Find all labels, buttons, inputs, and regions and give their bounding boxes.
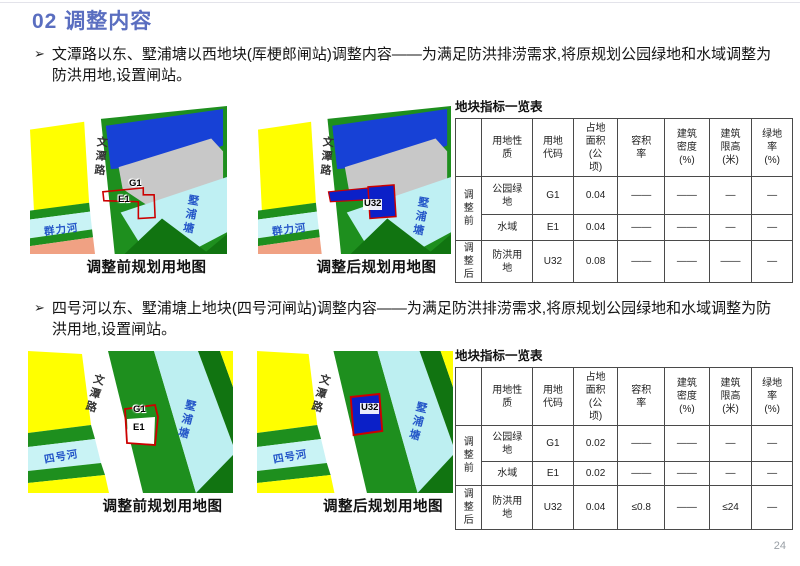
cell-area: 0.02 <box>573 426 618 462</box>
col-header: 用地性 质 <box>482 368 533 426</box>
table-row: 水域 E1 0.02 —— —— — — <box>456 462 793 486</box>
bullet-text-2: 四号河以东、墅浦塘上地块(四号河闸站)调整内容——为满足防洪排涝需求,将原规划公… <box>52 298 782 340</box>
col-header: 建筑 密度 (%) <box>665 119 710 177</box>
row-group-after: 调 整 后 <box>456 241 482 283</box>
row-group-after: 调 整 后 <box>456 486 482 530</box>
cell-height: ≤24 <box>709 486 752 530</box>
parcel-yellow <box>257 351 317 433</box>
corner-cell <box>456 119 482 177</box>
cell-green: — <box>752 486 793 530</box>
cell-density: —— <box>665 241 710 283</box>
cell-far: —— <box>618 241 665 283</box>
col-header: 占地 面积 (公 顷) <box>573 368 618 426</box>
bullet-arrow-icon: ➢ <box>34 44 45 86</box>
table-title-1: 地块指标一览表 <box>455 96 543 115</box>
cell-green: — <box>752 177 793 215</box>
parcel-u32-block <box>351 394 383 435</box>
parcel-code-g1: G1 <box>129 178 142 189</box>
cell-area: 0.04 <box>573 177 618 215</box>
cell-density: —— <box>665 486 710 530</box>
bullet-item-1: ➢ 文潭路以东、墅浦塘以西地块(厍梗郎闸站)调整内容——为满足防洪排涝需求,将原… <box>34 44 782 86</box>
top-divider <box>0 2 800 3</box>
cell-far: —— <box>618 426 665 462</box>
map-caption-before-2: 调整前规划用地图 <box>60 495 265 516</box>
table-row: 调 整 后 防洪用 地 U32 0.04 ≤0.8 —— ≤24 — <box>456 486 793 530</box>
map-before-section2: 文潭路 四号河 墅浦塘 G1 E1 <box>28 351 233 493</box>
cell-green: — <box>752 462 793 486</box>
col-header: 用地性 质 <box>482 119 533 177</box>
cell-far: —— <box>618 462 665 486</box>
cell-green: — <box>752 215 793 241</box>
cell-nature: 防洪用 地 <box>482 241 533 283</box>
corner-cell <box>456 368 482 426</box>
cell-far: ≤0.8 <box>618 486 665 530</box>
parcel-yellow <box>258 122 316 211</box>
cell-area: 0.02 <box>573 462 618 486</box>
cell-green: — <box>752 426 793 462</box>
col-header: 建筑 限高 (米) <box>709 119 752 177</box>
map-before-section1: 文潭路 群力河 墅浦塘 G1 E1 <box>30 106 227 254</box>
table-header-row: 用地性 质 用地 代码 占地 面积 (公 顷) 容积 率 建筑 密度 (%) 建… <box>456 119 793 177</box>
cell-nature: 公园绿 地 <box>482 426 533 462</box>
map-caption-after-1: 调整后规划用地图 <box>280 256 473 277</box>
cell-area: 0.04 <box>573 486 618 530</box>
parcel-yellow <box>30 122 89 211</box>
cell-code: E1 <box>533 215 574 241</box>
cell-nature: 公园绿 地 <box>482 177 533 215</box>
parcel-code-u32: U32 <box>360 403 379 414</box>
cell-height: —— <box>709 241 752 283</box>
cell-code: G1 <box>533 426 574 462</box>
col-header: 建筑 限高 (米) <box>709 368 752 426</box>
table-row: 调 整 前 公园绿 地 G1 0.04 —— —— — — <box>456 177 793 215</box>
cell-nature: 防洪用 地 <box>482 486 533 530</box>
cell-density: —— <box>665 462 710 486</box>
bullet-arrow-icon: ➢ <box>34 298 45 340</box>
row-group-before: 调 整 前 <box>456 426 482 486</box>
bullet-text-1: 文潭路以东、墅浦塘以西地块(厍梗郎闸站)调整内容——为满足防洪排涝需求,将原规划… <box>52 44 782 86</box>
cell-density: —— <box>665 426 710 462</box>
cell-code: G1 <box>533 177 574 215</box>
cell-far: —— <box>618 177 665 215</box>
table-row: 调 整 前 公园绿 地 G1 0.02 —— —— — — <box>456 426 793 462</box>
page-number: 24 <box>774 540 786 552</box>
cell-code: U32 <box>533 241 574 283</box>
page-title: 02 调整内容 <box>32 5 152 35</box>
cell-density: —— <box>665 177 710 215</box>
col-header: 绿地 率 (%) <box>752 368 793 426</box>
col-header: 容积 率 <box>618 368 665 426</box>
indicator-table-2: 用地性 质 用地 代码 占地 面积 (公 顷) 容积 率 建筑 密度 (%) 建… <box>455 367 793 530</box>
map-after-section2: 文潭路 四号河 墅浦塘 U32 <box>257 351 453 493</box>
cell-area: 0.04 <box>573 215 618 241</box>
cell-green: — <box>752 241 793 283</box>
map-caption-before-1: 调整前规划用地图 <box>48 256 245 277</box>
row-group-before: 调 整 前 <box>456 177 482 241</box>
parcel-code-e1: E1 <box>133 422 145 433</box>
cell-nature: 水域 <box>482 215 533 241</box>
cell-nature: 水域 <box>482 462 533 486</box>
bullet-item-2: ➢ 四号河以东、墅浦塘上地块(四号河闸站)调整内容——为满足防洪排涝需求,将原规… <box>34 298 782 340</box>
map-after-section1: 文潭路 群力河 墅浦塘 U32 <box>258 106 451 254</box>
indicator-table-1: 用地性 质 用地 代码 占地 面积 (公 顷) 容积 率 建筑 密度 (%) 建… <box>455 118 793 283</box>
table-title-2: 地块指标一览表 <box>455 345 543 364</box>
table-header-row: 用地性 质 用地 代码 占地 面积 (公 顷) 容积 率 建筑 密度 (%) 建… <box>456 368 793 426</box>
parcel-code-e1: E1 <box>118 194 130 205</box>
cell-density: —— <box>665 215 710 241</box>
map-caption-after-2: 调整后规划用地图 <box>285 495 481 516</box>
cell-height: — <box>709 177 752 215</box>
slide: 02 调整内容 ➢ 文潭路以东、墅浦塘以西地块(厍梗郎闸站)调整内容——为满足防… <box>0 0 800 566</box>
cell-far: —— <box>618 215 665 241</box>
landuse-map-svg <box>28 351 233 493</box>
col-header: 容积 率 <box>618 119 665 177</box>
col-header: 占地 面积 (公 顷) <box>573 119 618 177</box>
col-header: 建筑 密度 (%) <box>665 368 710 426</box>
cell-height: — <box>709 215 752 241</box>
col-header: 用地 代码 <box>533 368 574 426</box>
cell-code: U32 <box>533 486 574 530</box>
cell-area: 0.08 <box>573 241 618 283</box>
cell-height: — <box>709 462 752 486</box>
col-header: 绿地 率 (%) <box>752 119 793 177</box>
col-header: 用地 代码 <box>533 119 574 177</box>
parcel-code-g1: G1 <box>133 404 146 415</box>
cell-code: E1 <box>533 462 574 486</box>
table-row: 调 整 后 防洪用 地 U32 0.08 —— —— —— — <box>456 241 793 283</box>
parcel-yellow <box>28 351 91 433</box>
cell-height: — <box>709 426 752 462</box>
table-row: 水域 E1 0.04 —— —— — — <box>456 215 793 241</box>
parcel-code-u32: U32 <box>363 199 382 210</box>
